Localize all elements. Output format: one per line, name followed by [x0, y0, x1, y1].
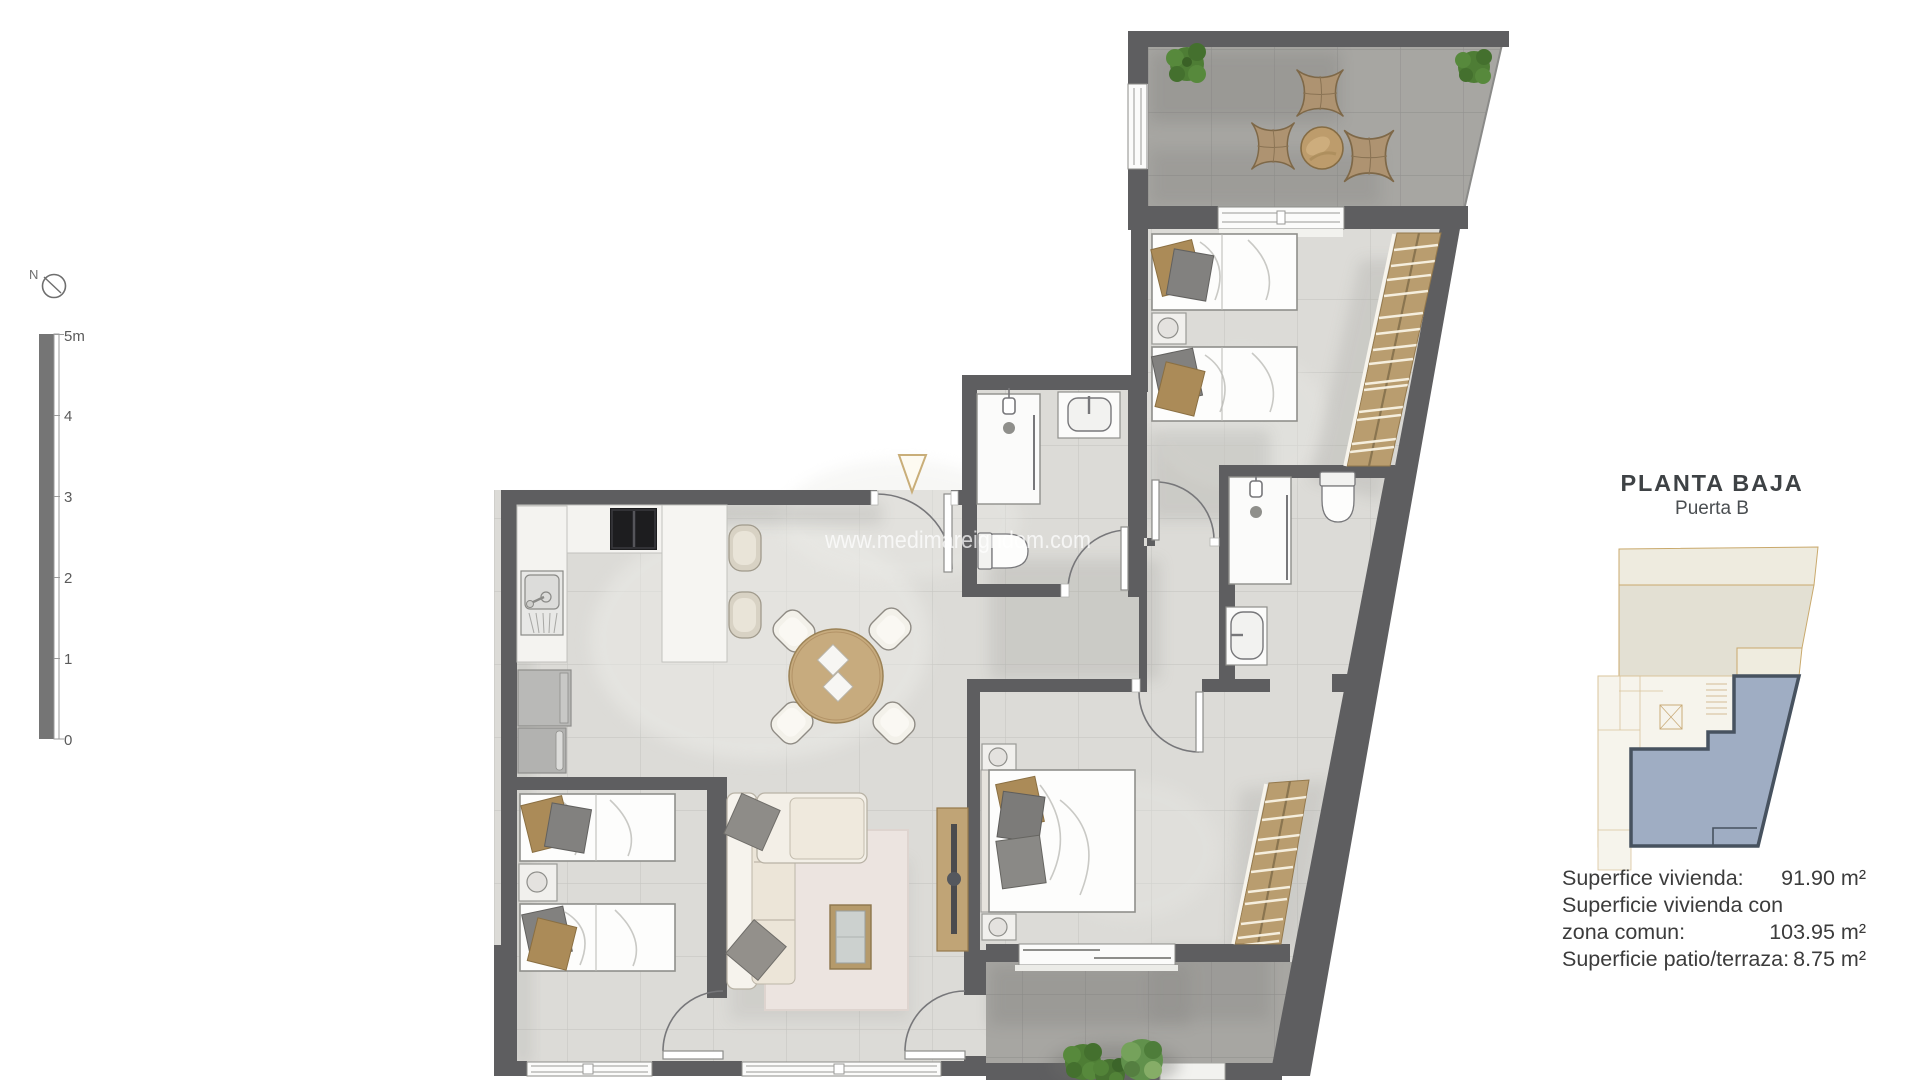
svg-text:zona comun:: zona comun:: [1562, 920, 1685, 944]
svg-text:PLANTA BAJA: PLANTA BAJA: [1621, 470, 1804, 496]
svg-text:1: 1: [64, 651, 72, 668]
svg-text:8.75 m²: 8.75 m²: [1793, 947, 1866, 971]
svg-text:91.90 m²: 91.90 m²: [1781, 866, 1866, 890]
svg-text:N: N: [29, 267, 38, 282]
svg-text:Superficie vivienda con: Superficie vivienda con: [1562, 893, 1783, 917]
svg-text:Superfice vivienda:: Superfice vivienda:: [1562, 866, 1744, 890]
svg-text:103.95 m²: 103.95 m²: [1769, 920, 1866, 944]
svg-text:Puerta B: Puerta B: [1675, 498, 1749, 519]
svg-text:5m: 5m: [64, 328, 85, 345]
svg-text:3: 3: [64, 489, 72, 506]
svg-text:Superficie patio/terraza:: Superficie patio/terraza:: [1562, 947, 1789, 971]
svg-text:4: 4: [64, 408, 72, 425]
svg-text:0: 0: [64, 732, 72, 749]
svg-text:www.medimareigndom.com: www.medimareigndom.com: [824, 527, 1091, 554]
svg-text:2: 2: [64, 570, 72, 587]
